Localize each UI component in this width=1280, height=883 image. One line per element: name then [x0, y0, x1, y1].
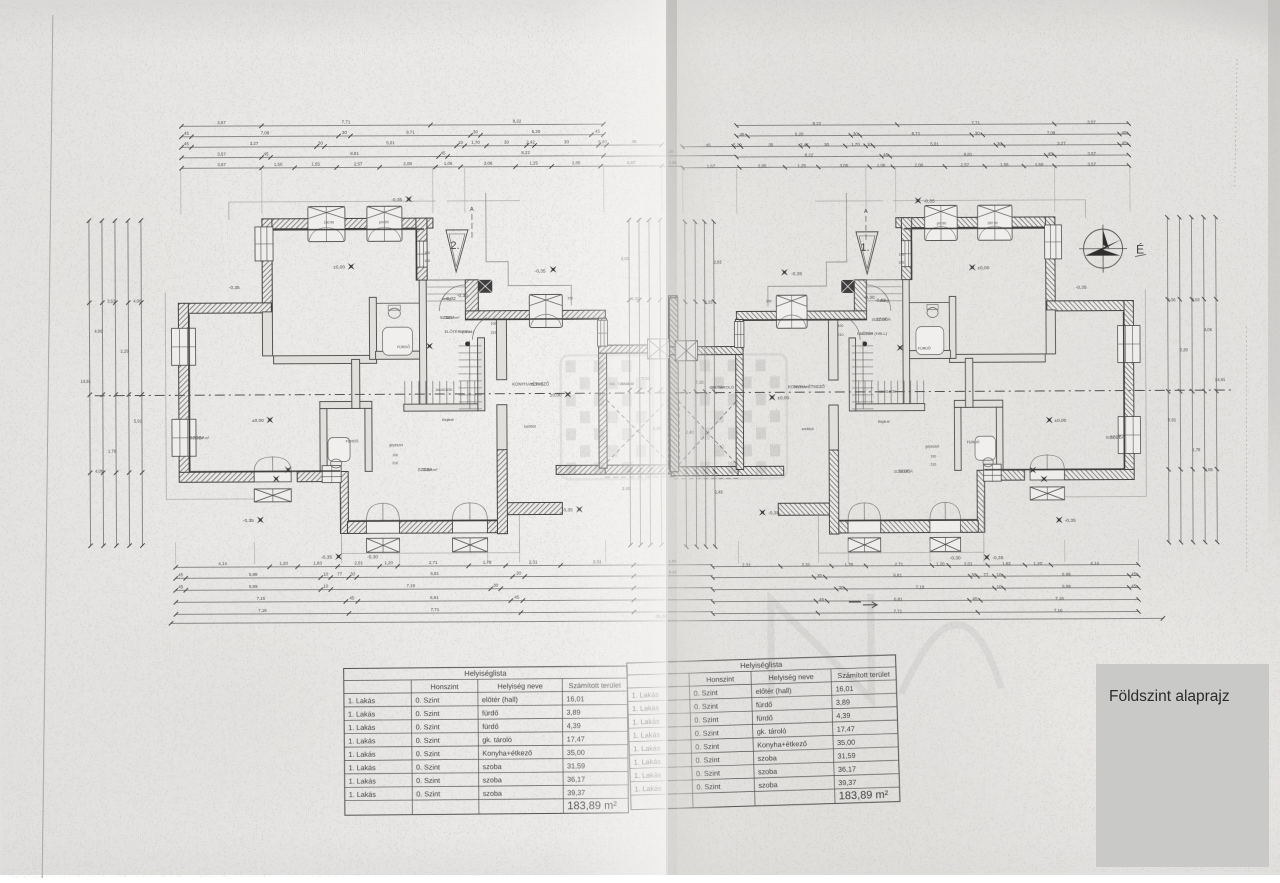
svg-text:fürdő: fürdő [756, 700, 773, 709]
svg-text:30: 30 [342, 130, 347, 135]
svg-text:5,01: 5,01 [386, 140, 395, 145]
svg-text:1,20: 1,20 [384, 560, 393, 565]
svg-text:gk. tároló: gk. tároló [757, 726, 787, 736]
svg-text:0. Szint: 0. Szint [694, 702, 718, 712]
svg-text:16,01: 16,01 [566, 694, 584, 703]
svg-text:1. Lakás: 1. Lakás [631, 690, 659, 700]
svg-text:2,31: 2,31 [529, 560, 538, 565]
svg-text:10: 10 [323, 584, 328, 589]
svg-text:Helyiség neve: Helyiség neve [498, 681, 543, 690]
svg-text:2,71: 2,71 [895, 562, 904, 567]
svg-text:-0,35: -0,35 [1076, 285, 1087, 291]
svg-text:0. Szint: 0. Szint [415, 695, 439, 704]
svg-text:2,29: 2,29 [120, 349, 129, 354]
svg-text:150: 150 [899, 253, 905, 257]
svg-text:100: 100 [491, 322, 497, 326]
svg-text:2,40: 2,40 [685, 430, 694, 435]
svg-text:36,17 m²: 36,17 m² [872, 318, 887, 322]
svg-text:16,01: 16,01 [835, 684, 853, 694]
svg-text:150: 150 [766, 299, 772, 303]
svg-text:210: 210 [838, 333, 844, 337]
svg-text:1,76: 1,76 [108, 449, 117, 454]
svg-text:45: 45 [632, 139, 637, 144]
svg-text:1. Lakás: 1. Lakás [348, 696, 376, 705]
svg-text:FÜRDŐ: FÜRDŐ [918, 346, 931, 351]
svg-text:2,71: 2,71 [429, 560, 438, 565]
svg-text:1,78: 1,78 [844, 562, 853, 567]
svg-text:30: 30 [564, 140, 569, 145]
svg-text:30: 30 [350, 572, 355, 577]
svg-text:183,89 m²: 183,89 m² [567, 800, 617, 812]
svg-text:30: 30 [473, 130, 478, 135]
svg-text:Helyiség neve: Helyiség neve [768, 672, 813, 682]
svg-text:1. Lakás: 1. Lakás [633, 743, 661, 753]
svg-text:5,99: 5,99 [249, 584, 258, 589]
svg-text:3,57: 3,57 [217, 152, 226, 157]
svg-text:szellőző: szellőző [524, 425, 536, 429]
svg-text:strang: strang [442, 297, 451, 301]
svg-text:17,47: 17,47 [567, 734, 585, 743]
svg-text:100: 100 [392, 453, 398, 457]
svg-text:A: A [864, 209, 868, 215]
svg-text:7,08: 7,08 [261, 131, 270, 136]
svg-text:1,20: 1,20 [279, 561, 288, 566]
svg-text:150: 150 [424, 259, 430, 263]
svg-text:szoba: szoba [482, 762, 501, 771]
svg-text:3,27: 3,27 [250, 141, 259, 146]
svg-text:fürdő: fürdő [756, 713, 773, 722]
svg-text:45: 45 [184, 141, 189, 146]
svg-text:30: 30 [493, 583, 498, 588]
svg-text:1. Lakás: 1. Lakás [632, 703, 660, 713]
svg-text:-0,30: -0,30 [367, 554, 378, 560]
svg-text:Helyiséglista: Helyiséglista [740, 660, 783, 670]
svg-text:1,78: 1,78 [483, 560, 492, 565]
svg-text:0. Szint: 0. Szint [416, 722, 440, 731]
svg-text:±0,00: ±0,00 [977, 265, 989, 271]
svg-text:3,57: 3,57 [1087, 162, 1096, 167]
svg-text:1.: 1. [860, 242, 869, 254]
svg-text:fürdő: fürdő [482, 722, 498, 731]
svg-text:fürdő: fürdő [482, 708, 498, 717]
svg-text:1. Lakás: 1. Lakás [634, 757, 662, 767]
svg-text:0. Szint: 0. Szint [416, 762, 440, 771]
svg-text:39,37 m²: 39,37 m² [1106, 436, 1121, 440]
svg-text:2,85: 2,85 [572, 160, 581, 165]
svg-text:3,57: 3,57 [1087, 120, 1096, 125]
svg-text:7,71: 7,71 [431, 607, 440, 612]
svg-text:2,33: 2,33 [631, 296, 640, 301]
svg-text:36,17: 36,17 [567, 775, 585, 784]
svg-text:45: 45 [178, 573, 183, 578]
svg-text:3,06: 3,06 [484, 161, 493, 166]
svg-text:3,06: 3,06 [840, 163, 849, 168]
svg-text:pm 90: pm 90 [379, 220, 389, 224]
svg-text:-0,35: -0,35 [562, 507, 573, 513]
svg-text:45: 45 [1122, 141, 1127, 146]
svg-text:1,76: 1,76 [1192, 447, 1201, 452]
svg-text:35,00: 35,00 [567, 748, 585, 757]
svg-text:5,99: 5,99 [1062, 584, 1071, 589]
svg-text:7,08: 7,08 [1047, 131, 1056, 136]
svg-text:6,81: 6,81 [430, 595, 439, 600]
svg-text:45: 45 [1131, 572, 1136, 577]
svg-text:0. Szint: 0. Szint [696, 768, 720, 778]
svg-text:9,71: 9,71 [406, 130, 415, 135]
svg-text:7,71: 7,71 [971, 120, 980, 125]
svg-text:1. Lakás: 1. Lakás [348, 723, 376, 732]
svg-text:9,71: 9,71 [912, 131, 921, 136]
svg-text:1. Lakás: 1. Lakás [632, 717, 660, 727]
svg-text:1,67: 1,67 [627, 160, 636, 165]
svg-text:előtér (hall): előtér (hall) [755, 686, 791, 696]
svg-text:1,50: 1,50 [274, 162, 283, 167]
svg-text:1,55: 1,55 [311, 162, 320, 167]
svg-text:2.: 2. [450, 240, 459, 252]
svg-text:szellőző: szellőző [802, 427, 814, 431]
svg-text:39,37: 39,37 [838, 778, 856, 788]
svg-text:8,22: 8,22 [513, 119, 522, 124]
svg-text:31,59 m²: 31,59 m² [894, 470, 909, 474]
svg-text:8,22: 8,22 [521, 150, 530, 155]
svg-text:Honszint: Honszint [431, 682, 459, 691]
svg-text:Számított terület: Számított terület [569, 681, 621, 690]
svg-text:45: 45 [178, 585, 183, 590]
svg-text:Helyiséglista: Helyiséglista [464, 669, 507, 678]
svg-text:3,27: 3,27 [1057, 141, 1066, 146]
svg-text:45: 45 [1122, 130, 1127, 135]
svg-text:45,29: 45,29 [655, 614, 667, 619]
svg-text:1,83: 1,83 [1002, 561, 1011, 566]
svg-text:45: 45 [972, 596, 977, 601]
svg-text:45: 45 [595, 129, 600, 134]
svg-text:-0,35: -0,35 [992, 555, 1003, 561]
svg-text:45: 45 [514, 595, 519, 600]
svg-text:30: 30 [824, 142, 829, 147]
svg-text:10: 10 [996, 572, 1001, 577]
svg-text:gépészet: gépészet [925, 444, 939, 448]
svg-text:30: 30 [997, 141, 1002, 146]
svg-text:FÜRDŐ: FÜRDŐ [346, 438, 359, 443]
svg-text:5,20: 5,20 [795, 132, 804, 137]
svg-text:31,59 m²: 31,59 m² [423, 468, 438, 472]
svg-text:7,16: 7,16 [1055, 596, 1064, 601]
svg-text:8,81: 8,81 [350, 151, 359, 156]
svg-text:150: 150 [567, 296, 573, 300]
svg-text:77: 77 [983, 572, 988, 577]
svg-text:4,39: 4,39 [836, 711, 850, 720]
svg-text:30: 30 [504, 140, 509, 145]
svg-text:77: 77 [337, 572, 342, 577]
svg-text:1,20: 1,20 [936, 562, 945, 567]
svg-text:2,57: 2,57 [354, 162, 363, 167]
svg-text:5,01: 5,01 [930, 142, 939, 147]
svg-text:4,06: 4,06 [1204, 327, 1213, 332]
svg-text:3,53: 3,53 [1192, 297, 1201, 302]
svg-text:5,91: 5,91 [1168, 417, 1177, 422]
svg-text:1,50: 1,50 [1035, 162, 1044, 167]
svg-text:2,03: 2,03 [713, 260, 722, 265]
svg-text:0. Szint: 0. Szint [416, 736, 440, 745]
svg-text:0. Szint: 0. Szint [693, 688, 717, 698]
svg-text:2,31: 2,31 [742, 563, 751, 568]
svg-text:183,89 m²: 183,89 m² [839, 789, 889, 803]
svg-text:6,81: 6,81 [430, 571, 439, 576]
svg-text:2,03: 2,03 [621, 256, 630, 261]
svg-text:0. Szint: 0. Szint [416, 789, 440, 798]
svg-text:14,91: 14,91 [80, 379, 91, 384]
svg-text:2,42: 2,42 [526, 140, 535, 145]
svg-text:5,20: 5,20 [733, 143, 742, 148]
svg-text:45: 45 [349, 596, 354, 601]
svg-text:1. Lakás: 1. Lakás [349, 790, 377, 799]
svg-text:45: 45 [819, 597, 824, 602]
svg-text:45: 45 [441, 151, 446, 156]
svg-text:35,00: 35,00 [837, 738, 855, 748]
svg-text:strang: strang [880, 299, 889, 303]
svg-text:3,57: 3,57 [1087, 151, 1096, 156]
svg-text:-0,35: -0,35 [791, 271, 802, 277]
svg-text:45: 45 [184, 131, 189, 136]
svg-text:8,81: 8,81 [964, 152, 973, 157]
svg-text:3,57: 3,57 [217, 120, 226, 125]
svg-text:-0,35: -0,35 [924, 199, 935, 205]
svg-text:17,47: 17,47 [837, 724, 855, 734]
svg-text:210: 210 [392, 461, 398, 465]
svg-text:16x16,5/30: 16x16,5/30 [879, 390, 896, 394]
svg-text:Bejárat: Bejárat [878, 420, 889, 424]
svg-text:0. Szint: 0. Szint [416, 709, 440, 718]
svg-text:szoba: szoba [483, 775, 502, 784]
svg-text:-0,35: -0,35 [391, 197, 402, 203]
svg-text:0. Szint: 0. Szint [416, 776, 440, 785]
svg-text:7,16: 7,16 [257, 596, 266, 601]
svg-text:1,06: 1,06 [877, 163, 886, 168]
svg-text:0. Szint: 0. Szint [694, 715, 718, 725]
svg-text:2,01: 2,01 [354, 561, 363, 566]
svg-text:3,89: 3,89 [836, 698, 850, 707]
svg-text:16x16,5/30: 16x16,5/30 [435, 388, 452, 392]
svg-text:30: 30 [971, 572, 976, 577]
svg-text:3,57: 3,57 [217, 162, 226, 167]
svg-text:Bejárat: Bejárat [442, 418, 453, 422]
svg-text:1,25: 1,25 [797, 163, 806, 168]
svg-text:6,81: 6,81 [893, 573, 902, 578]
svg-text:30: 30 [975, 131, 980, 136]
svg-text:150: 150 [899, 261, 905, 265]
svg-text:35,00 m²: 35,00 m² [530, 382, 544, 386]
svg-text:7,19: 7,19 [916, 585, 925, 590]
svg-text:10: 10 [997, 584, 1002, 589]
svg-text:-0,35: -0,35 [321, 555, 332, 561]
svg-text:2,85: 2,85 [758, 164, 767, 169]
svg-text:1. Lakás: 1. Lakás [634, 770, 662, 780]
svg-text:1,70: 1,70 [471, 140, 480, 145]
svg-text:±0,00: ±0,00 [333, 264, 345, 270]
svg-text:30: 30 [853, 132, 858, 137]
svg-text:0. Szint: 0. Szint [416, 749, 440, 758]
svg-text:szoba: szoba [758, 767, 777, 777]
svg-text:45: 45 [740, 132, 745, 137]
svg-text:FÜRDŐ: FÜRDŐ [397, 344, 410, 349]
svg-text:0. Szint: 0. Szint [695, 728, 719, 738]
svg-text:31,59: 31,59 [567, 761, 585, 770]
svg-text:6,10: 6,10 [669, 569, 678, 574]
svg-text:39,37: 39,37 [567, 788, 585, 797]
svg-text:1,55: 1,55 [1000, 162, 1009, 167]
svg-text:2,45: 2,45 [622, 486, 631, 491]
svg-text:gk. tároló: gk. tároló [482, 735, 512, 744]
svg-text:1,62: 1,62 [669, 558, 678, 563]
svg-text:-0,35: -0,35 [1065, 518, 1076, 524]
svg-text:1,20: 1,20 [1034, 561, 1043, 566]
svg-text:16,01 m²: 16,01 m² [860, 332, 873, 336]
svg-text:-0,35: -0,35 [229, 285, 240, 291]
svg-text:5,99: 5,99 [249, 572, 258, 577]
svg-text:16,01 m²: 16,01 m² [459, 330, 472, 334]
svg-text:2,08: 2,08 [403, 161, 412, 166]
svg-text:Honszint: Honszint [706, 674, 734, 684]
svg-text:2,29: 2,29 [1180, 347, 1189, 352]
svg-text:1,25: 1,25 [529, 161, 538, 166]
svg-text:4,06: 4,06 [94, 329, 103, 334]
svg-text:45: 45 [1048, 152, 1053, 157]
svg-text:30: 30 [817, 573, 822, 578]
svg-text:36,17: 36,17 [838, 764, 856, 774]
svg-text:7,10: 7,10 [695, 380, 704, 385]
svg-text:5,20: 5,20 [532, 129, 541, 134]
svg-text:0. Szint: 0. Szint [695, 755, 719, 765]
svg-text:36,17 m²: 36,17 m² [445, 316, 460, 320]
svg-text:31,59: 31,59 [837, 751, 855, 761]
svg-text:3,53: 3,53 [107, 299, 116, 304]
svg-text:5,91: 5,91 [134, 419, 143, 424]
svg-text:2,31: 2,31 [802, 562, 811, 567]
svg-text:8,22: 8,22 [813, 121, 822, 126]
svg-text:1. Lakás: 1. Lakás [349, 776, 377, 785]
svg-text:7,16: 7,16 [258, 608, 267, 613]
svg-text:előtér (hall): előtér (hall) [482, 695, 518, 704]
svg-text:150 90: 150 90 [987, 221, 998, 225]
svg-text:7,71: 7,71 [342, 120, 351, 125]
svg-text:0. Szint: 0. Szint [695, 742, 719, 752]
svg-text:szoba: szoba [483, 789, 502, 798]
svg-text:-0,30: -0,30 [864, 295, 875, 301]
svg-text:szoba: szoba [758, 780, 777, 790]
svg-text:7,19: 7,19 [406, 583, 415, 588]
svg-text:2,01: 2,01 [964, 562, 973, 567]
svg-text:100: 100 [930, 455, 936, 459]
svg-text:4,14: 4,14 [1090, 561, 1099, 566]
svg-text:10: 10 [458, 140, 463, 145]
svg-text:10: 10 [323, 572, 328, 577]
svg-text:4,39: 4,39 [567, 721, 581, 730]
svg-text:17,47 m²: 17,47 m² [621, 382, 634, 386]
svg-text:-0,35: -0,35 [243, 518, 254, 524]
svg-text:pm 90: pm 90 [937, 221, 947, 225]
svg-text:2,31: 2,31 [593, 559, 602, 564]
svg-text:-0,35: -0,35 [768, 510, 779, 516]
svg-text:6,10: 6,10 [666, 149, 675, 154]
svg-text:39,37 m²: 39,37 m² [195, 436, 210, 440]
svg-text:Konyha+étkező: Konyha+étkező [482, 748, 532, 757]
svg-text:210: 210 [491, 331, 497, 335]
svg-text:1. Lakás: 1. Lakás [633, 730, 661, 740]
svg-text:1,83: 1,83 [313, 561, 322, 566]
svg-text:30: 30 [768, 143, 773, 148]
svg-text:7,71: 7,71 [894, 609, 903, 614]
svg-text:1. Lakás: 1. Lakás [348, 736, 376, 745]
svg-text:2,57: 2,57 [961, 163, 970, 168]
svg-text:FÜRDŐ: FÜRDŐ [967, 439, 980, 444]
svg-text:0. Szint: 0. Szint [696, 782, 720, 792]
svg-text:10: 10 [867, 142, 872, 147]
svg-text:4,08: 4,08 [95, 469, 104, 474]
svg-text:2,42: 2,42 [800, 142, 809, 147]
svg-text:gépészet: gépészet [389, 443, 403, 447]
svg-text:É: É [1136, 241, 1144, 256]
svg-text:Konyha+étkező: Konyha+étkező [757, 739, 807, 750]
svg-text:30: 30 [318, 141, 323, 146]
svg-text:30: 30 [516, 571, 521, 576]
svg-text:45: 45 [706, 143, 711, 148]
svg-text:45: 45 [1131, 584, 1136, 589]
svg-text:4,08: 4,08 [1204, 467, 1213, 472]
svg-text:35,00 m²: 35,00 m² [794, 385, 808, 389]
svg-text:210: 210 [930, 463, 936, 467]
svg-text:1,06: 1,06 [444, 161, 453, 166]
svg-text:szoba: szoba [757, 753, 776, 763]
svg-text:1,67: 1,67 [707, 164, 716, 169]
svg-text:-0,30: -0,30 [950, 555, 961, 561]
svg-text:±0,00: ±0,00 [252, 418, 264, 424]
svg-text:6,81: 6,81 [894, 597, 903, 602]
svg-text:2,33: 2,33 [704, 300, 713, 305]
svg-text:±0,00: ±0,00 [1054, 418, 1066, 424]
svg-text:5,20: 5,20 [598, 139, 607, 144]
svg-text:5,99: 5,99 [1062, 572, 1071, 577]
svg-text:Számított terület: Számított terület [837, 670, 890, 681]
svg-text:100: 100 [838, 324, 844, 328]
svg-text:2,08: 2,08 [915, 163, 924, 168]
svg-text:8,22: 8,22 [805, 153, 814, 158]
svg-text:3,89: 3,89 [567, 708, 581, 717]
svg-text:A: A [470, 207, 474, 213]
svg-text:-0,35: -0,35 [535, 268, 546, 274]
svg-text:4,06: 4,06 [1167, 297, 1176, 302]
svg-text:1,70: 1,70 [851, 142, 860, 147]
svg-text:45: 45 [264, 152, 269, 157]
svg-text:1. Lakás: 1. Lakás [348, 763, 376, 772]
svg-text:1. Lakás: 1. Lakás [348, 750, 376, 759]
svg-text:7,16: 7,16 [1054, 608, 1063, 613]
svg-text:150: 150 [424, 251, 430, 255]
svg-text:45: 45 [883, 152, 888, 157]
svg-text:1. Lakás: 1. Lakás [634, 784, 662, 794]
svg-text:4,06: 4,06 [133, 299, 142, 304]
svg-text:150 90: 150 90 [324, 221, 335, 225]
svg-text:-0,30: -0,30 [457, 293, 468, 299]
svg-text:14,91: 14,91 [1215, 377, 1226, 382]
svg-text:1. Lakás: 1. Lakás [348, 709, 376, 718]
svg-text:4,14: 4,14 [218, 561, 227, 566]
svg-text:30: 30 [839, 585, 844, 590]
svg-text:2,96: 2,96 [669, 160, 678, 165]
svg-text:2,45: 2,45 [715, 490, 724, 495]
